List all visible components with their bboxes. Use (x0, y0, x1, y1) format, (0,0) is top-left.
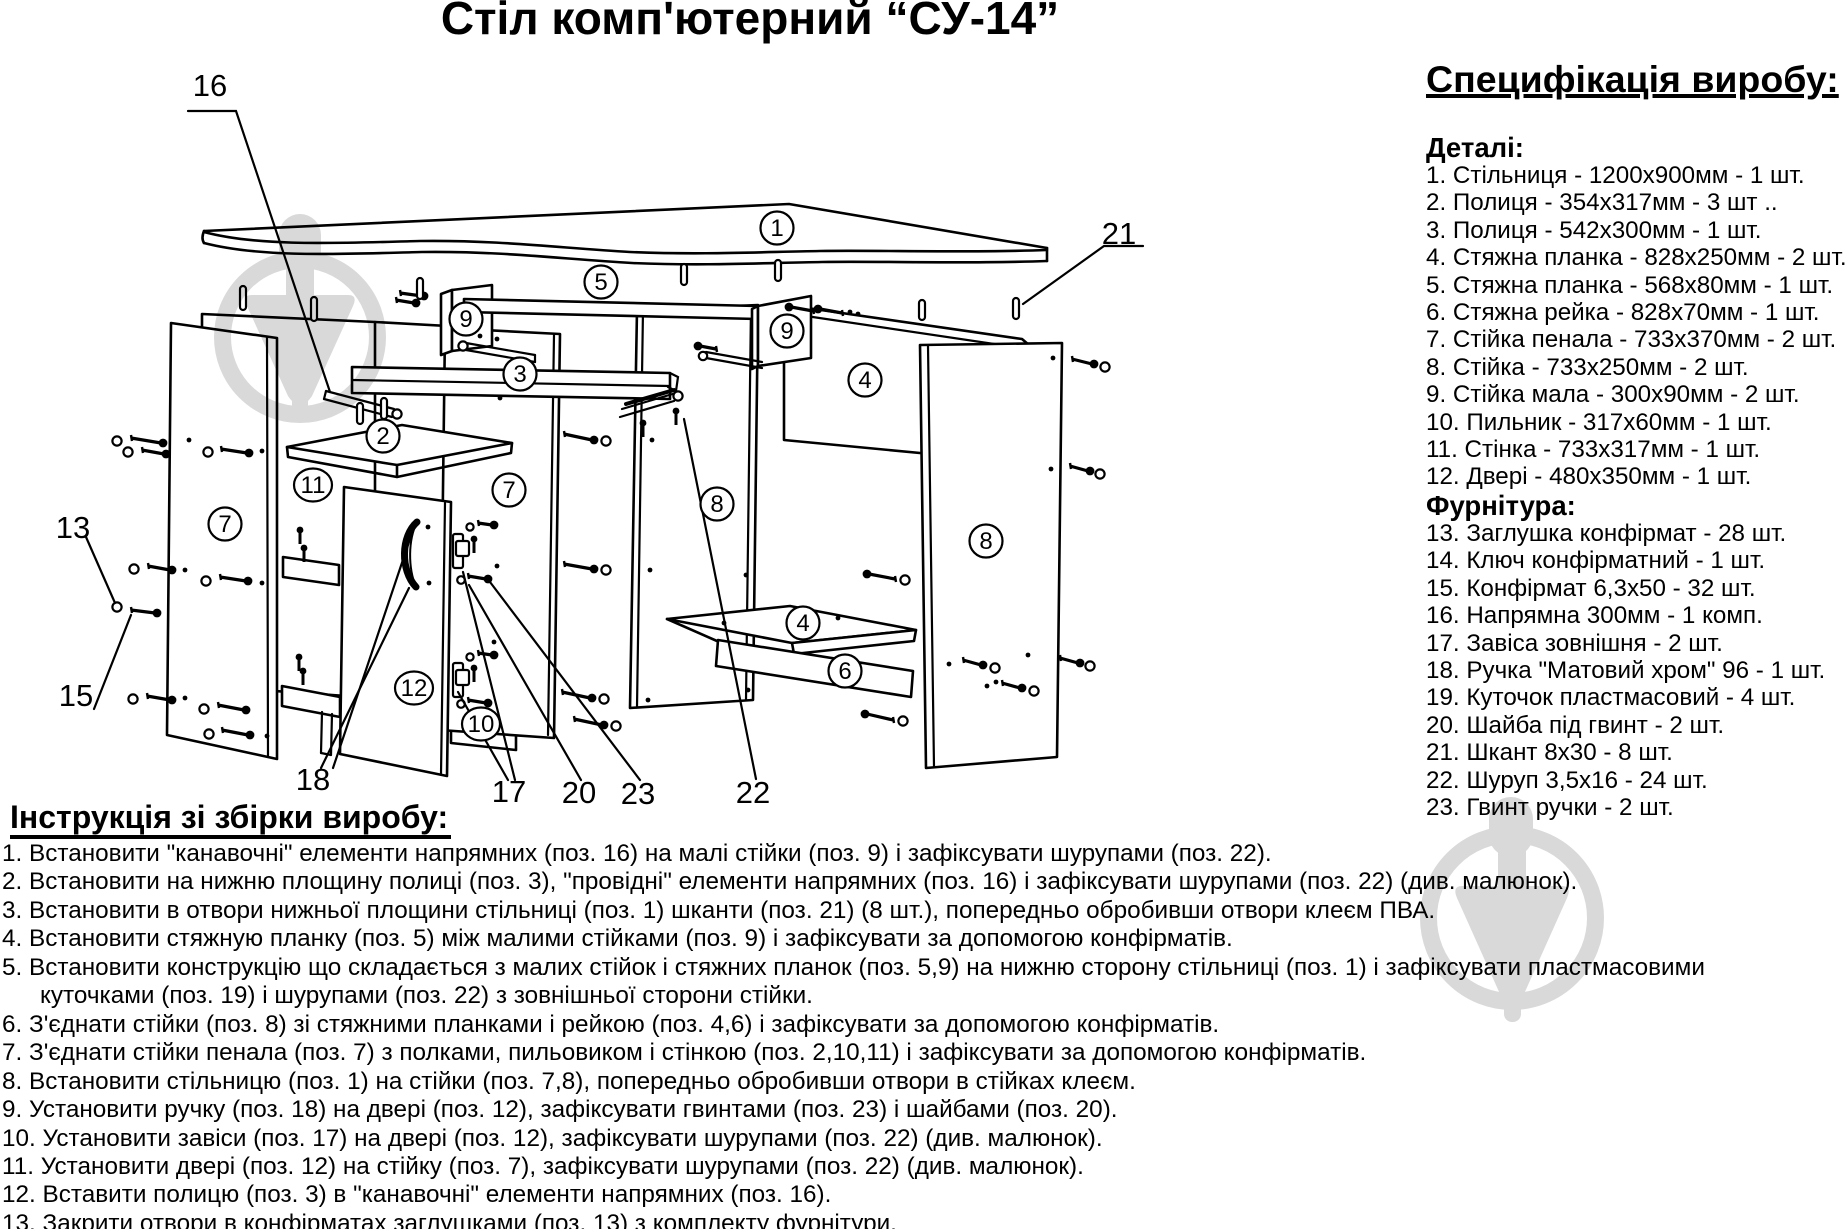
svg-text:12: 12 (401, 675, 428, 702)
svg-text:17: 17 (492, 774, 526, 809)
svg-text:2: 2 (376, 423, 389, 450)
svg-text:8: 8 (710, 491, 723, 518)
svg-text:7: 7 (218, 511, 231, 538)
svg-text:9: 9 (459, 306, 472, 333)
svg-text:1: 1 (770, 215, 783, 242)
svg-text:9: 9 (780, 318, 793, 345)
svg-text:5: 5 (594, 269, 607, 296)
svg-text:18: 18 (296, 762, 330, 797)
svg-text:20: 20 (562, 775, 596, 810)
svg-text:21: 21 (1102, 216, 1136, 251)
svg-text:6: 6 (838, 658, 851, 685)
svg-text:13: 13 (56, 510, 90, 545)
svg-text:15: 15 (59, 678, 93, 713)
svg-text:11: 11 (301, 472, 326, 499)
svg-text:4: 4 (858, 367, 871, 394)
svg-text:10: 10 (468, 711, 495, 738)
svg-text:7: 7 (502, 477, 515, 504)
svg-text:4: 4 (796, 610, 809, 637)
svg-text:3: 3 (513, 361, 526, 388)
svg-text:8: 8 (979, 528, 992, 555)
svg-text:16: 16 (193, 68, 227, 103)
svg-text:23: 23 (621, 776, 655, 811)
svg-text:22: 22 (736, 775, 770, 810)
